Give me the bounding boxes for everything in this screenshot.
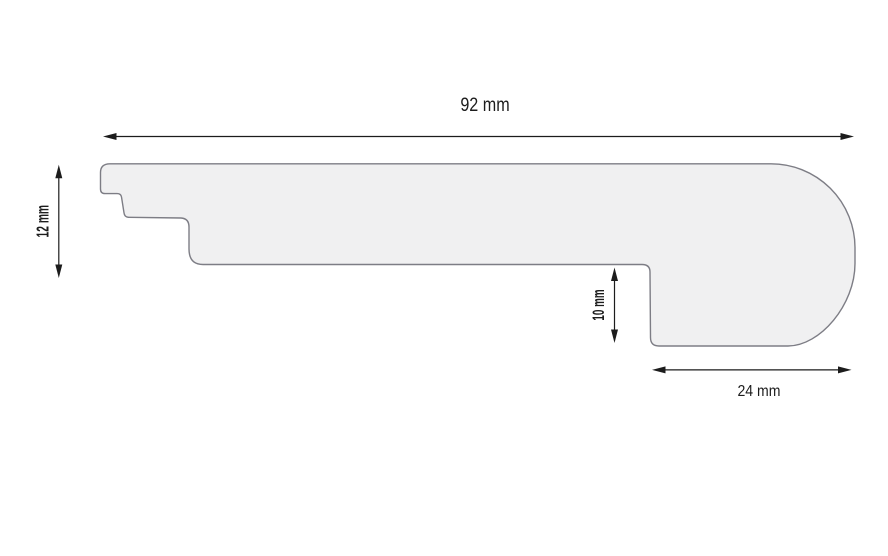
svg-text:24 mm: 24 mm xyxy=(737,382,780,400)
svg-text:10 mm: 10 mm xyxy=(588,289,608,320)
svg-text:12 mm: 12 mm xyxy=(34,205,54,237)
svg-text:92 mm: 92 mm xyxy=(460,94,509,116)
